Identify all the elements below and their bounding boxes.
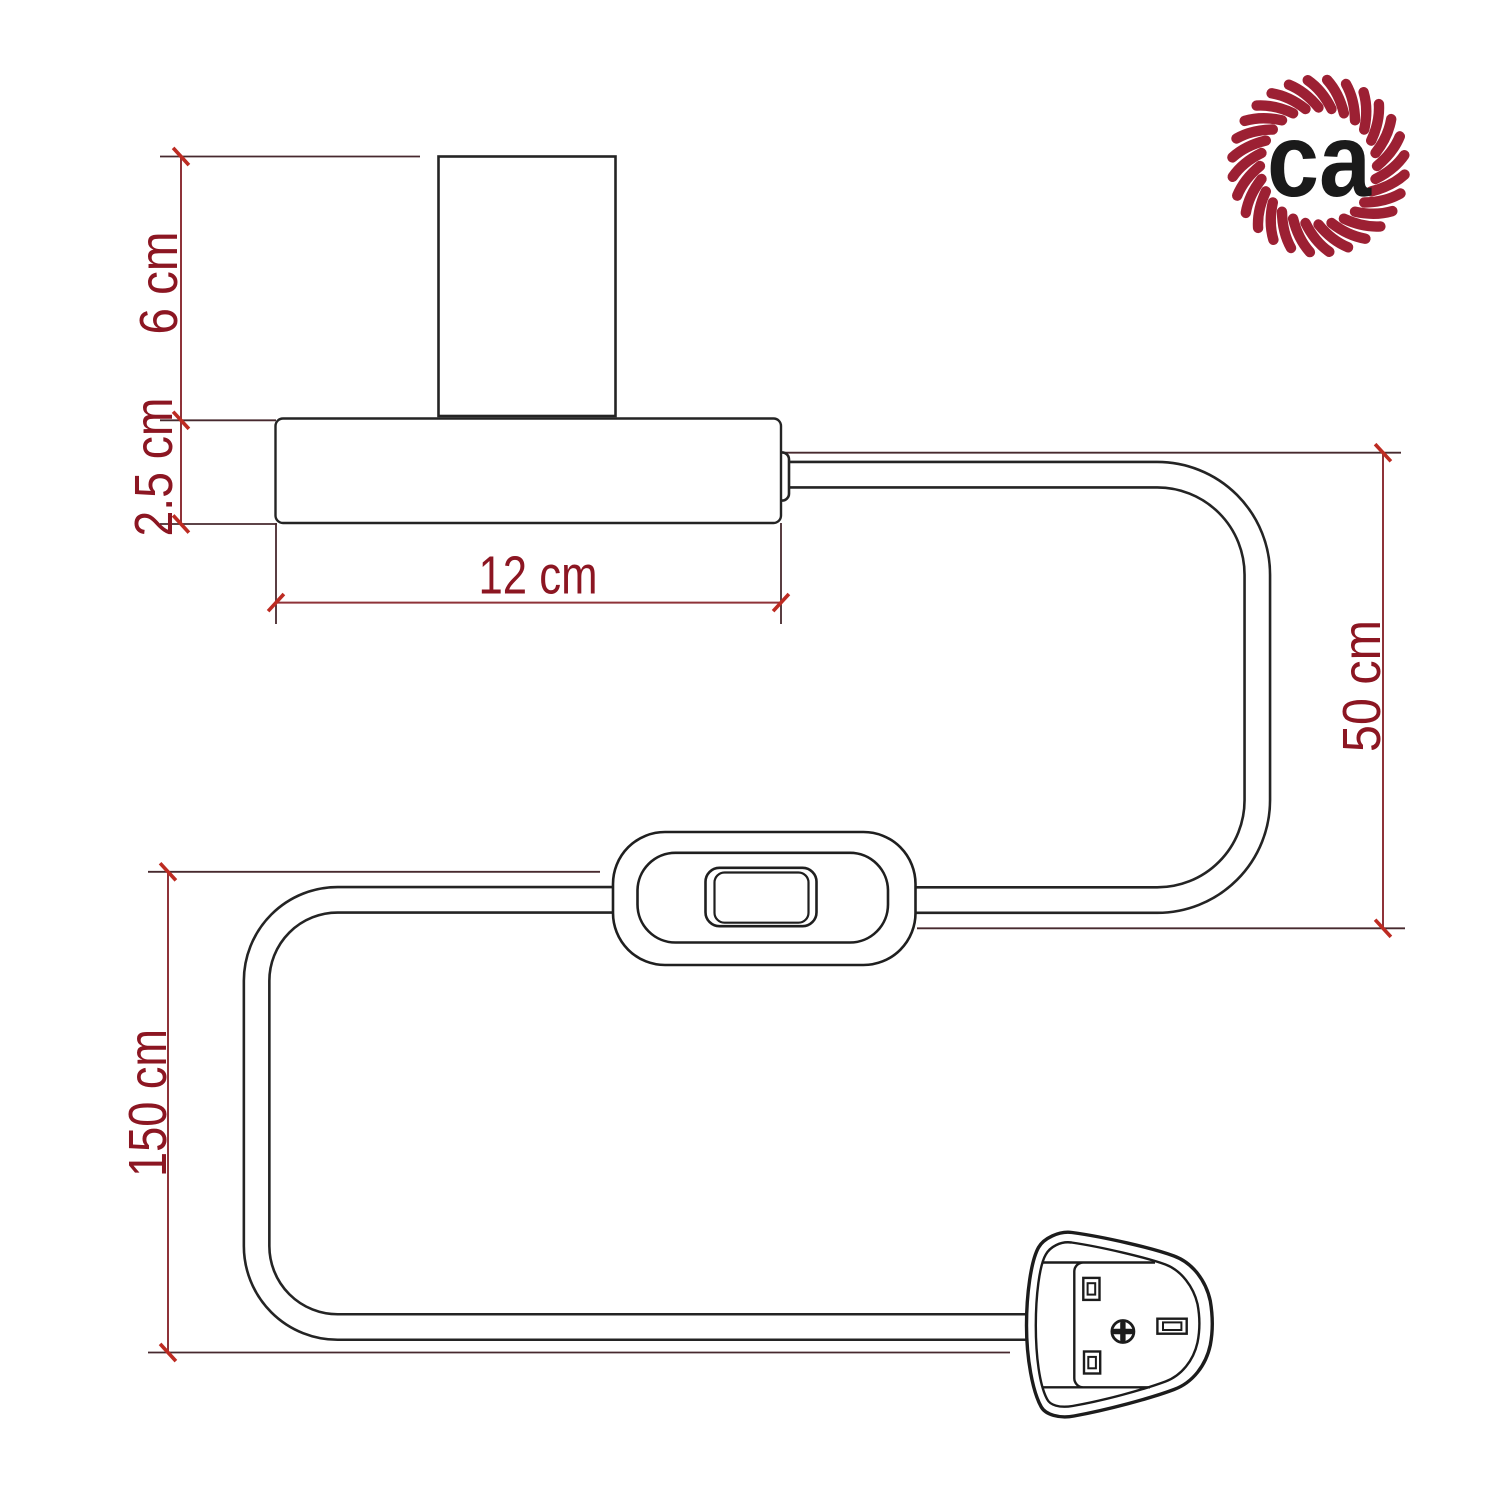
svg-text:150 cm: 150 cm bbox=[118, 1029, 178, 1177]
svg-text:ca: ca bbox=[1267, 103, 1372, 219]
svg-text:12 cm: 12 cm bbox=[479, 546, 598, 606]
svg-text:2.5 cm: 2.5 cm bbox=[124, 398, 184, 537]
svg-text:6 cm: 6 cm bbox=[129, 232, 189, 335]
svg-text:50 cm: 50 cm bbox=[1332, 620, 1392, 752]
